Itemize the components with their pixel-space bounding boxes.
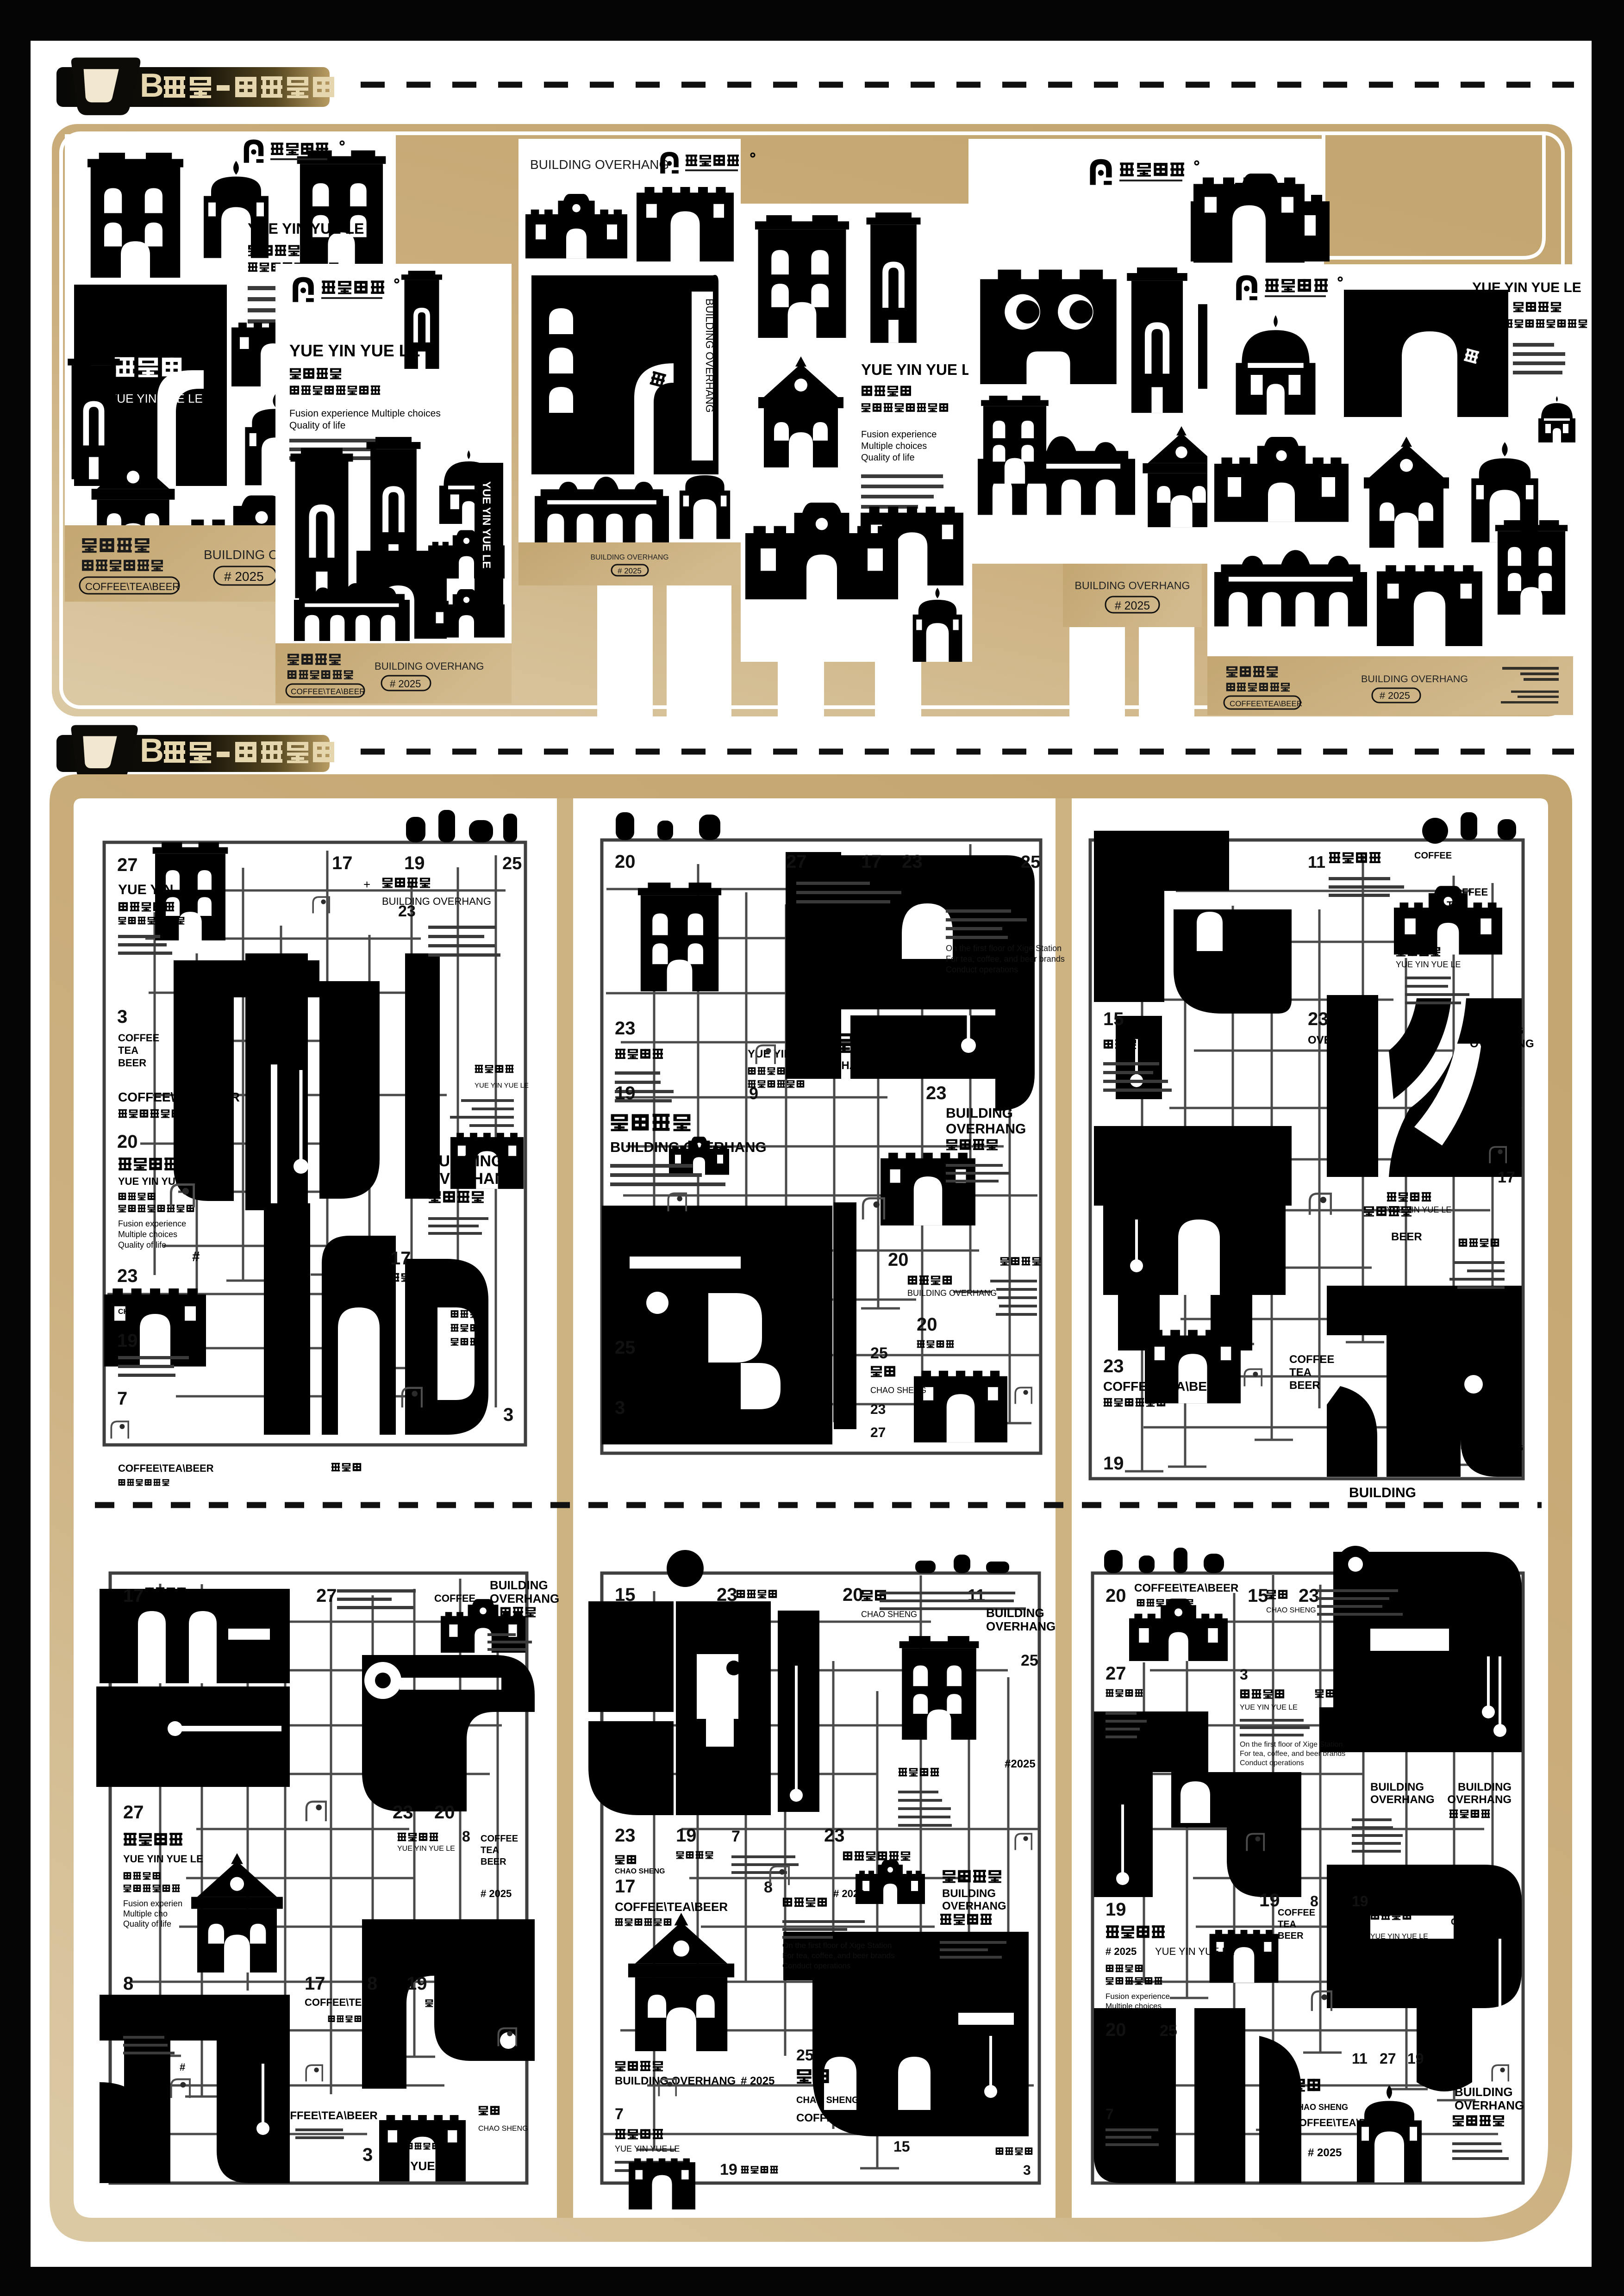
svg-text:TEA: TEA xyxy=(1289,1366,1312,1379)
svg-text:27: 27 xyxy=(316,1586,337,1606)
svg-text:# 2025: # 2025 xyxy=(1380,690,1410,701)
svg-text:COFFEE\TEA\BEER: COFFEE\TEA\BEER xyxy=(1134,1582,1238,1594)
svg-text:YUE YIN YUE LE: YUE YIN YUE LE xyxy=(109,392,203,405)
svg-text:COFFEE\TEA\BEER: COFFEE\TEA\BEER xyxy=(118,1462,214,1474)
svg-text:23: 23 xyxy=(1308,1009,1329,1029)
svg-text:25: 25 xyxy=(615,1338,636,1358)
svg-text:23: 23 xyxy=(117,1266,138,1286)
svg-text:20: 20 xyxy=(1106,2020,1126,2040)
svg-text:27: 27 xyxy=(1106,1663,1126,1684)
svg-text:YUE YIN YUE LE: YUE YIN YUE LE xyxy=(615,2144,680,2153)
svg-text:COFFEE\: COFFEE\ xyxy=(123,1998,171,2011)
svg-text:3: 3 xyxy=(117,1007,127,1027)
svg-text:27: 27 xyxy=(1380,2050,1396,2067)
svg-text:CHAO SHENG: CHAO SHENG xyxy=(1461,1443,1524,1453)
svg-text:COFFEE\TEA\BEER: COFFEE\TEA\BEER xyxy=(291,687,365,696)
svg-text:BEER: BEER xyxy=(643,1429,669,1439)
svg-text:Fusion experience: Fusion experience xyxy=(1106,1992,1170,2001)
svg-text:Fusion experien: Fusion experien xyxy=(123,1899,182,1908)
svg-text:25: 25 xyxy=(796,2047,814,2064)
svg-text:CHAO SHENG: CHAO SHENG xyxy=(870,1386,926,1395)
svg-text:COFFEE: COFFEE xyxy=(1278,1908,1315,1918)
svg-text:CHAO SHENG: CHAO SHENG xyxy=(615,1380,665,1388)
svg-text:Quality of life: Quality of life xyxy=(861,453,915,463)
svg-text:COFFEE\TEA\BEER: COFFEE\TEA\BEER xyxy=(305,1997,400,2008)
svg-text:BUILDING: BUILDING xyxy=(986,1606,1044,1620)
svg-text:19: 19 xyxy=(1352,1893,1368,1910)
svg-text:YUE YIN YUE LE: YUE YIN YUE LE xyxy=(1370,1933,1428,1941)
svg-text:#: # xyxy=(192,1249,200,1264)
svg-text:BUILDING OVERHANG: BUILDING OVERHANG xyxy=(610,1139,767,1155)
svg-text:20: 20 xyxy=(615,852,636,872)
svg-text:CHAO SHENG: CHAO SHENG xyxy=(615,1867,665,1875)
svg-text:BUILDING: BUILDING xyxy=(490,1578,548,1592)
svg-text:# 2025: # 2025 xyxy=(390,678,421,690)
svg-text:7: 7 xyxy=(1106,2106,1114,2122)
svg-text:3: 3 xyxy=(1023,2163,1031,2178)
svg-text:8: 8 xyxy=(1310,1893,1318,1910)
svg-text:BUILDING: BUILDING xyxy=(1458,1781,1512,1793)
svg-text:11: 11 xyxy=(1308,852,1325,871)
svg-text:YUE YIN YUE LE: YUE YIN YUE LE xyxy=(289,341,420,360)
svg-text:# 2025: # 2025 xyxy=(1115,599,1150,612)
svg-text:Conduct operations: Conduct operations xyxy=(1240,1759,1304,1767)
svg-text:TEA: TEA xyxy=(1447,899,1467,911)
svg-text:Fusion experience: Fusion experience xyxy=(861,429,937,440)
svg-text:YUE YIN YUE LE: YUE YIN YUE LE xyxy=(480,481,493,569)
svg-text:BEER: BEER xyxy=(1278,1931,1304,1941)
svg-text:Fusion experience Multiple ch: Fusion experience Multiple choices xyxy=(289,408,441,419)
svg-text:TEA: TEA xyxy=(1278,1919,1296,1929)
svg-text:BEER: BEER xyxy=(991,1023,1024,1037)
svg-text:Quality of life: Quality of life xyxy=(1106,2011,1151,2020)
svg-text:TEA: TEA xyxy=(118,1045,138,1056)
svg-text:For tea, coffee, and beer bran: For tea, coffee, and beer brands xyxy=(946,954,1065,964)
svg-text:BUILD: BUILD xyxy=(1106,2058,1134,2068)
svg-text:OVERHANG: OVERHANG xyxy=(1447,1793,1512,1806)
svg-text:17: 17 xyxy=(861,852,882,872)
svg-text:YUE YIN YUE LE: YUE YIN YUE LE xyxy=(1472,280,1581,295)
svg-text:25: 25 xyxy=(1160,2022,1177,2040)
svg-text:OVERHANG: OVERHANG xyxy=(490,1592,559,1605)
svg-text:20: 20 xyxy=(434,1802,455,1823)
svg-text:23: 23 xyxy=(717,1585,737,1605)
svg-text:23: 23 xyxy=(615,1018,636,1039)
svg-text:BUILDING OVERHANG: BUILDING OVERHANG xyxy=(590,554,668,561)
svg-text:YUE YIN YUE LE: YUE YIN YUE LE xyxy=(397,1845,455,1853)
svg-text:YUE YIN YUE LE: YUE YIN YUE LE xyxy=(123,1853,203,1865)
svg-text:OVERHANG: OVERHANG xyxy=(1370,1793,1435,1806)
svg-text:# 2025: # 2025 xyxy=(618,566,642,575)
svg-text:3: 3 xyxy=(362,2145,373,2165)
svg-text:15: 15 xyxy=(1103,1009,1124,1029)
svg-text:COFFEE\TEA\BEER: COFFEE\TEA\BEER xyxy=(796,2112,900,2124)
svg-text:Quality of life: Quality of life xyxy=(289,420,345,431)
svg-text:Multiple choices: Multiple choices xyxy=(118,1230,177,1239)
svg-text:BUILDING: BUILDING xyxy=(1470,1025,1524,1037)
svg-text:BUILDING: BUILDING xyxy=(942,1887,996,1900)
svg-text:#: # xyxy=(180,2061,185,2073)
svg-text:23: 23 xyxy=(1299,1586,1319,1606)
svg-text:B: B xyxy=(140,732,164,769)
svg-text:YUE YIN YUE LE: YUE YIN YUE LE xyxy=(475,1082,529,1089)
svg-text:# 2025: # 2025 xyxy=(224,569,264,584)
svg-text:25: 25 xyxy=(870,1344,888,1362)
svg-text:COFFEE\TEA\BEER: COFFEE\TEA\BEER xyxy=(615,1900,728,1914)
svg-text:2026: 2026 xyxy=(1389,1945,1410,1955)
svg-text:7: 7 xyxy=(731,1828,740,1845)
svg-text:CHAO SHENG: CHAO SHENG xyxy=(833,1059,909,1072)
svg-text:27: 27 xyxy=(123,1802,144,1823)
svg-text:Multiple choices: Multiple choices xyxy=(1106,2002,1162,2010)
svg-text:17: 17 xyxy=(305,1973,325,1994)
svg-text:19: 19 xyxy=(404,853,425,873)
svg-text:19: 19 xyxy=(676,1825,697,1846)
svg-text:Conduct operations: Conduct operations xyxy=(946,965,1018,974)
svg-text:Quality of life: Quality of life xyxy=(123,1919,171,1929)
svg-text:COFFEE: COFFEE xyxy=(434,1593,475,1604)
svg-text:7: 7 xyxy=(117,1388,127,1409)
svg-text:YUE YIN YUE LE: YUE YIN YUE LE xyxy=(1240,1704,1298,1711)
svg-text:TEA: TEA xyxy=(481,1845,499,1855)
svg-text:COFFEE: COFFEE xyxy=(481,1834,518,1844)
svg-text:OVERHANG: OVERHANG xyxy=(986,1619,1056,1633)
svg-text:BUILDING: BUILDING xyxy=(1455,2085,1513,2099)
svg-text:20: 20 xyxy=(843,1585,863,1605)
svg-text:COFFEE: COFFEE xyxy=(643,1406,681,1416)
svg-text:8: 8 xyxy=(764,1879,773,1896)
svg-text:BEER: BEER xyxy=(1462,1939,1488,1949)
svg-text:8: 8 xyxy=(123,1973,133,1994)
svg-text:23: 23 xyxy=(615,1825,636,1846)
svg-text:15: 15 xyxy=(615,1585,636,1605)
svg-text:BUILDING: BUILDING xyxy=(427,1152,503,1170)
svg-text:17: 17 xyxy=(332,853,353,873)
svg-text:23: 23 xyxy=(902,852,923,872)
svg-text:8: 8 xyxy=(367,1973,377,1994)
svg-text:Multiple cho: Multiple cho xyxy=(123,1909,168,1918)
svg-text:BUILDING OVERHANG: BUILDING OVERHANG xyxy=(1361,673,1468,684)
svg-text:BUILDING OVERHANG: BUILDING OVERHANG xyxy=(375,660,484,672)
svg-text:On the first floor of Xige Sta: On the first floor of Xige Station xyxy=(946,944,1062,953)
svg-text:CHAO SHENG: CHAO SHENG xyxy=(796,2095,859,2105)
svg-text:19: 19 xyxy=(1259,1890,1280,1910)
svg-text:27: 27 xyxy=(786,852,807,872)
svg-text:# 2025: # 2025 xyxy=(741,2075,775,2087)
svg-text:On the first floor of Xige Sta: On the first floor of Xige Station xyxy=(782,1941,892,1950)
svg-text:19: 19 xyxy=(1103,1453,1124,1474)
svg-text:19: 19 xyxy=(1106,1899,1126,1920)
svg-text:BUILDING OVERHANG: BUILDING OVERHANG xyxy=(704,299,716,413)
svg-text:BUILDING: BUILDING xyxy=(1349,1485,1416,1500)
svg-text:3: 3 xyxy=(615,1398,625,1418)
svg-text:B: B xyxy=(140,67,164,104)
svg-text:BUILDING: BUILDING xyxy=(1370,1781,1424,1793)
svg-text:23: 23 xyxy=(1103,1356,1124,1376)
svg-text:COFFEE\TEA\BEER: COFFEE\TEA\BEER xyxy=(118,1090,240,1104)
svg-text:25: 25 xyxy=(1021,852,1040,872)
svg-text:OVERHANG: OVERHANG xyxy=(1455,2098,1524,2112)
svg-text:20: 20 xyxy=(888,1250,909,1270)
svg-text:OVERHANG: OVERHANG xyxy=(942,1900,1006,1912)
svg-text:23: 23 xyxy=(824,1825,845,1846)
svg-text:7: 7 xyxy=(615,2105,624,2123)
svg-text:17: 17 xyxy=(1498,1169,1515,1186)
svg-text:20: 20 xyxy=(1106,1586,1126,1606)
svg-text:CHAO SHENG: CHAO SHENG xyxy=(1266,1606,1316,1614)
svg-text:Quality of life: Quality of life xyxy=(118,1240,166,1250)
svg-text:BEER: BEER xyxy=(1391,1231,1422,1243)
svg-text:# 2025: # 2025 xyxy=(1106,1946,1137,1957)
svg-text:19: 19 xyxy=(117,1331,138,1351)
svg-text:YUE YIN: YUE YIN xyxy=(118,882,174,897)
svg-text:8: 8 xyxy=(462,1828,470,1845)
svg-text:25: 25 xyxy=(1021,1652,1038,1669)
svg-text:15: 15 xyxy=(893,2138,910,2155)
svg-text:BEER: BEER xyxy=(1289,1379,1320,1392)
svg-text:OVERHANG: OVERHANG xyxy=(946,1121,1026,1137)
svg-text:For tea, coffee, and beer bran: For tea, coffee, and beer brands xyxy=(1240,1750,1345,1758)
svg-text:23: 23 xyxy=(393,1802,413,1823)
svg-text:# 2026: # 2026 xyxy=(833,1888,864,1899)
svg-text:Fusion experience: Fusion experience xyxy=(118,1219,186,1228)
svg-text:YUE YIN YUE LE: YUE YIN YUE LE xyxy=(1396,960,1461,969)
svg-text:23: 23 xyxy=(870,1402,886,1417)
svg-text:19: 19 xyxy=(615,1083,636,1103)
svg-text:COFFEE\TEA\BEER: COFFEE\TEA\BEER xyxy=(273,2109,377,2122)
svg-text:OVERHANG: OVERHANG xyxy=(1308,1034,1372,1046)
svg-text:COFFEE: COFFEE xyxy=(1447,886,1488,898)
svg-text:BUILDING: BUILDING xyxy=(946,1106,1013,1121)
svg-text:19: 19 xyxy=(406,1973,427,1994)
svg-text:CHAO SHENG: CHAO SHENG xyxy=(478,2125,528,2133)
svg-text:27: 27 xyxy=(117,855,138,875)
svg-text:20: 20 xyxy=(917,1314,937,1335)
svg-text:COFFEE\TEA\BEER: COFFEE\TEA\BEER xyxy=(1230,699,1302,708)
svg-text:# 2025: # 2025 xyxy=(481,1888,512,1899)
svg-text:3: 3 xyxy=(503,1405,513,1425)
svg-text:23: 23 xyxy=(926,1083,947,1103)
svg-text:+: + xyxy=(363,877,370,891)
svg-text:COFFEE: COFFEE xyxy=(1414,851,1452,861)
svg-text:OVERHANG: OVERHANG xyxy=(427,1170,518,1188)
svg-text:BUILDING OVERHANG: BUILDING OVERHANG xyxy=(530,157,669,172)
svg-text:23: 23 xyxy=(398,902,416,920)
svg-text:BUILDING OVERHANG: BUILDING OVERHANG xyxy=(907,1288,997,1298)
svg-text:19: 19 xyxy=(1407,2050,1424,2067)
svg-text:25: 25 xyxy=(502,854,522,873)
svg-text:20: 20 xyxy=(117,1132,138,1152)
svg-text:COFFEE: COFFEE xyxy=(118,1032,159,1044)
svg-text:COFFEE: COFFEE xyxy=(1289,1353,1334,1366)
svg-text:COFFEE\TEA\BEER: COFFEE\TEA\BEER xyxy=(1103,1379,1225,1394)
svg-text:YUE YIN YUE LE: YUE YIN YUE LE xyxy=(861,361,981,378)
svg-text:BUILDING OVERHANG: BUILDING OVERHANG xyxy=(1074,579,1190,591)
svg-text:BEER: BEER xyxy=(1447,912,1475,924)
svg-text:OVERHANG: OVERHANG xyxy=(1470,1038,1534,1050)
svg-text:BEER: BEER xyxy=(481,1857,506,1867)
svg-text:COFFEE\TEA\BEER: COFFEE\TEA\BEER xyxy=(85,581,180,592)
svg-text:YUE YIN YUE LE: YUE YIN YUE LE xyxy=(248,220,364,237)
svg-text:COFFEE\TEA\BEER: COFFEE\TEA\BEER xyxy=(1292,2117,1387,2128)
svg-text:YUE YIN: YUE YIN xyxy=(410,2159,458,2173)
svg-text:19: 19 xyxy=(720,2161,737,2178)
svg-text:BEER: BEER xyxy=(118,1057,146,1069)
svg-text:Multiple choices: Multiple choices xyxy=(861,441,927,451)
svg-text:TEA: TEA xyxy=(643,1418,662,1428)
svg-text:17: 17 xyxy=(615,1876,636,1897)
svg-text:11: 11 xyxy=(1352,2050,1368,2067)
svg-text:CHAO SHENG: CHAO SHENG xyxy=(861,1610,917,1619)
svg-text:TEA: TEA xyxy=(1470,1928,1488,1938)
svg-text:27: 27 xyxy=(870,1425,886,1440)
svg-text:YUE YIN YUE LE: YUE YIN YUE LE xyxy=(946,892,1018,902)
svg-text:YUE YIN YUE LE: YUE YIN YUE LE xyxy=(1155,1946,1235,1957)
svg-text:17: 17 xyxy=(123,1586,144,1606)
svg-text:#2025: #2025 xyxy=(1005,1758,1036,1770)
svg-text:For tea, coffee, and beer bran: For tea, coffee, and beer brands xyxy=(782,1951,895,1960)
svg-text:3: 3 xyxy=(1240,1666,1248,1683)
svg-text:On the first floor of Xige Sta: On the first floor of Xige Station xyxy=(1240,1741,1343,1748)
svg-text:CHAO SHENG: CHAO SHENG xyxy=(118,1308,168,1316)
svg-text:17: 17 xyxy=(390,1248,411,1269)
svg-text:COFFEE: COFFEE xyxy=(1451,1917,1488,1927)
svg-text:# 2025: # 2025 xyxy=(1308,2147,1342,2159)
svg-text:CHAO SHENG: CHAO SHENG xyxy=(1292,2103,1348,2112)
svg-text:15: 15 xyxy=(1248,1586,1268,1606)
svg-text:Conduct operations: Conduct operations xyxy=(782,1961,850,1970)
